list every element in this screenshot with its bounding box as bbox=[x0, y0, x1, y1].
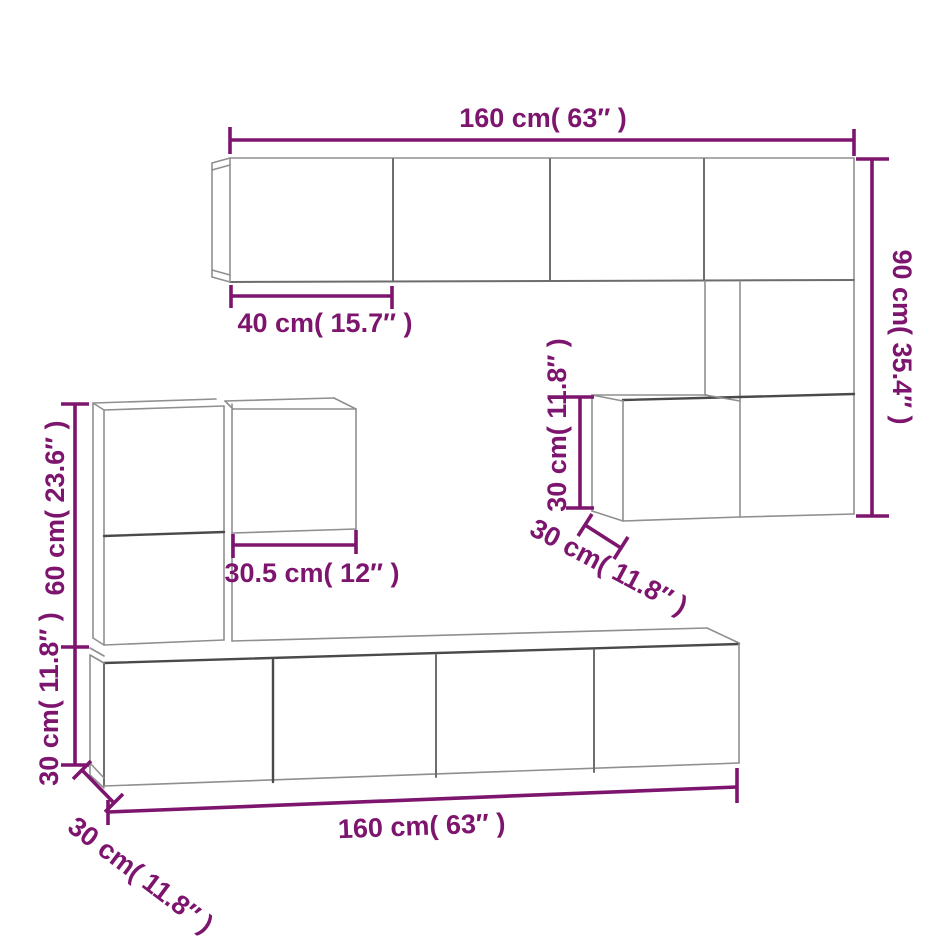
dim-label-bottom-width: 160 cm( 63″ ) bbox=[337, 808, 506, 844]
dim-label-left-lower-height: 30 cm( 11.8″ ) bbox=[34, 612, 64, 786]
dim-bottom-depth-line bbox=[73, 761, 123, 812]
dim-label-mid-cube-height: 30 cm( 11.8″ ) bbox=[542, 338, 572, 512]
dim-label-bottom-depth: 30 cm( 11.8″ ) bbox=[62, 811, 219, 939]
dim-left-cube-width-line bbox=[233, 530, 356, 558]
dim-label-top-width: 160 cm( 63″ ) bbox=[459, 103, 627, 133]
top-wall-cabinet bbox=[212, 158, 854, 282]
right-column-cubes bbox=[623, 281, 854, 517]
dim-top-door-line bbox=[231, 285, 392, 309]
furniture-dimension-diagram: 160 cm( 63″ ) 40 cm( 15.7″ ) 90 cm( 35.4… bbox=[0, 0, 947, 947]
dim-label-mid-cube-depth: 30 cm( 11.8″ ) bbox=[525, 513, 692, 621]
left-small-cube bbox=[225, 398, 356, 641]
dim-label-left-upper-height: 60 cm( 23.6″ ) bbox=[40, 420, 70, 595]
middle-wall-cube bbox=[592, 395, 740, 521]
dimension-labels: 160 cm( 63″ ) 40 cm( 15.7″ ) 90 cm( 35.4… bbox=[34, 103, 917, 939]
left-tall-unit bbox=[93, 399, 224, 645]
dim-right-height-line bbox=[856, 159, 889, 516]
dim-label-right-height: 90 cm( 35.4″ ) bbox=[887, 249, 917, 424]
dim-label-top-door-width: 40 cm( 15.7″ ) bbox=[237, 308, 412, 338]
dim-label-left-cube-width: 30.5 cm( 12″ ) bbox=[224, 558, 399, 588]
bottom-tv-cabinet bbox=[90, 628, 739, 788]
